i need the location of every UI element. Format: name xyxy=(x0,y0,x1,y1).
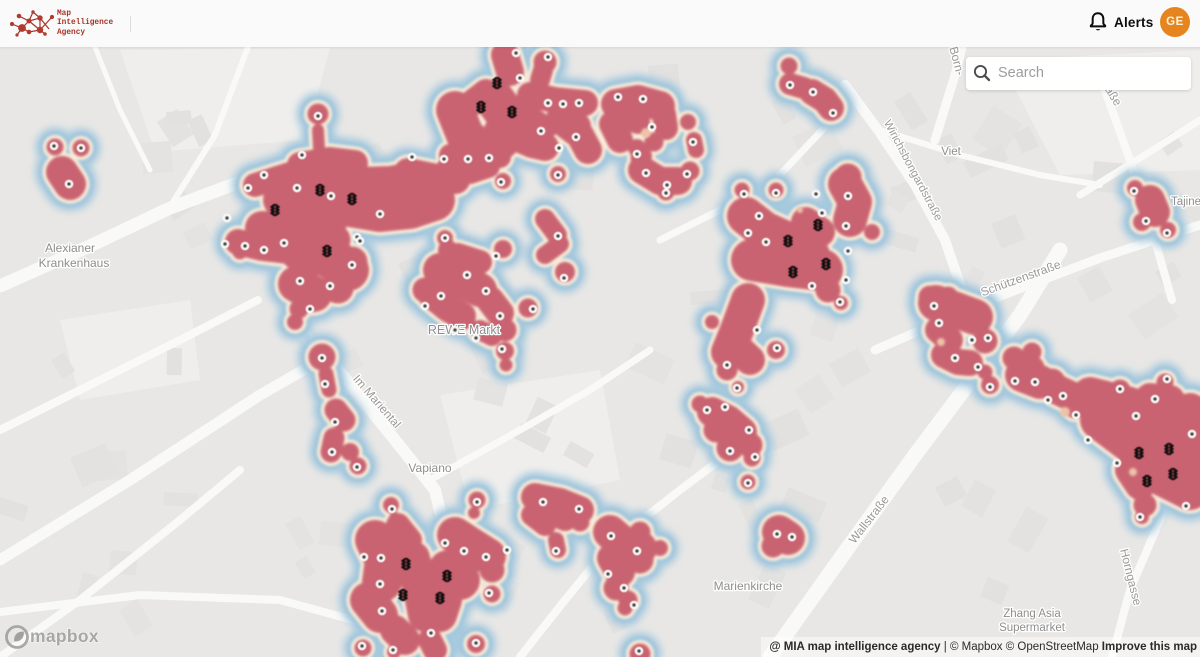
svg-text:Alexianer: Alexianer xyxy=(45,241,95,255)
svg-text:Zhang Asia: Zhang Asia xyxy=(1003,608,1061,620)
svg-text:Krankenhaus: Krankenhaus xyxy=(39,256,110,270)
svg-text:Marienkirche: Marienkirche xyxy=(714,579,783,593)
svg-text:Vapiano: Vapiano xyxy=(408,461,451,475)
svg-text:mapbox: mapbox xyxy=(30,626,99,646)
svg-text:Tajine: Tajine xyxy=(1171,196,1200,208)
svg-text:Supermarket: Supermarket xyxy=(999,622,1066,634)
svg-text:Viet: Viet xyxy=(941,146,961,158)
svg-text:REWE Markt: REWE Markt xyxy=(428,323,501,337)
